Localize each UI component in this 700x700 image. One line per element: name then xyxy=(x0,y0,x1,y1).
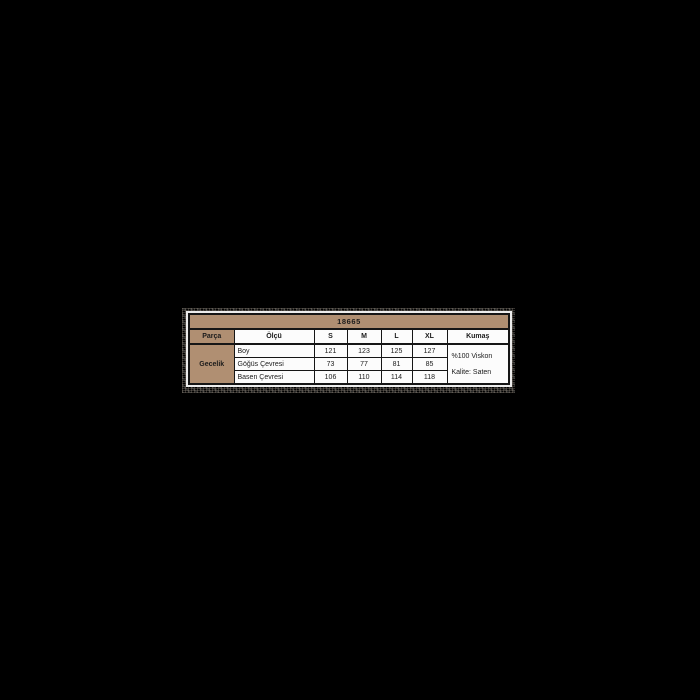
group-label: Gecelik xyxy=(189,344,234,384)
col-header-kumas: Kumaş xyxy=(447,329,509,344)
size-value-s: 106 xyxy=(314,371,347,385)
product-code: 18665 xyxy=(189,314,509,329)
size-value-l: 125 xyxy=(381,344,412,358)
black-canvas: 18665 Parça Ölçü S M L XL Kumaş Gecelik … xyxy=(0,0,700,700)
size-value-m: 123 xyxy=(347,344,381,358)
size-value-xl: 118 xyxy=(412,371,447,385)
size-value-s: 121 xyxy=(314,344,347,358)
size-chart-image-frame: 18665 Parça Ölçü S M L XL Kumaş Gecelik … xyxy=(182,308,515,393)
col-header-xl: XL xyxy=(412,329,447,344)
size-value-s: 73 xyxy=(314,358,347,371)
fabric-line-material: %100 Viskon xyxy=(452,353,507,360)
measure-label: Göğüs Çevresi xyxy=(234,358,314,371)
title-row: 18665 xyxy=(189,314,509,329)
table-row-boy: Gecelik Boy 121 123 125 127 %100 Viskon … xyxy=(189,344,509,358)
col-header-olcu: Ölçü xyxy=(234,329,314,344)
size-value-xl: 127 xyxy=(412,344,447,358)
size-value-m: 77 xyxy=(347,358,381,371)
col-header-l: L xyxy=(381,329,412,344)
col-header-s: S xyxy=(314,329,347,344)
size-value-l: 81 xyxy=(381,358,412,371)
measure-label: Boy xyxy=(234,344,314,358)
size-value-l: 114 xyxy=(381,371,412,385)
header-row: Parça Ölçü S M L XL Kumaş xyxy=(189,329,509,344)
size-chart-table: 18665 Parça Ölçü S M L XL Kumaş Gecelik … xyxy=(188,313,510,385)
col-header-m: M xyxy=(347,329,381,344)
measure-label: Basen Çevresi xyxy=(234,371,314,385)
col-header-parca: Parça xyxy=(189,329,234,344)
size-value-xl: 85 xyxy=(412,358,447,371)
fabric-cell: %100 Viskon Kalite: Saten xyxy=(447,344,509,384)
fabric-line-quality: Kalite: Saten xyxy=(452,369,507,376)
size-value-m: 110 xyxy=(347,371,381,385)
